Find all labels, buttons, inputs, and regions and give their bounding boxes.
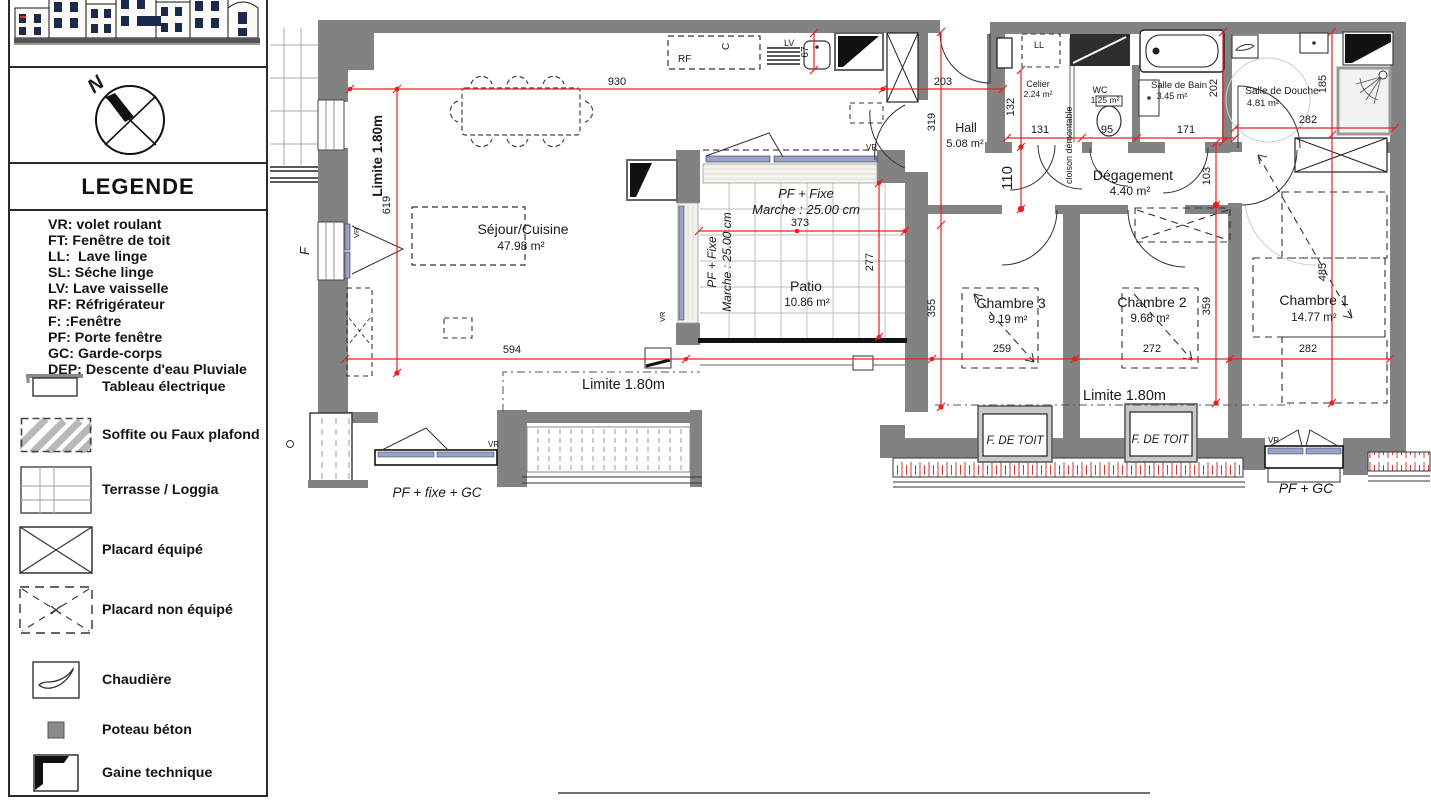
legend-abbreviations: VR: volet roulant FT: Fenêtre de toit LL… [48,217,262,378]
legend-item-unequipped-closet: Placard non équipé [10,583,266,637]
dim-485: 485 [1317,263,1329,281]
legend-item-technical-duct: Gaine technique [10,751,266,795]
legend-item-soffit: Soffite ou Faux plafond [10,414,266,456]
concrete-post-icon [10,721,102,739]
room-wc-name: WC [1093,85,1108,95]
dim-619: 619 [381,196,393,214]
abbrev-sl: SL: Séche linge [48,265,262,281]
legend-item-equipped-closet: Placard équipé [10,523,266,577]
abbrev-vr: VR: volet roulant [48,217,262,233]
abbrev-ll: LL: Lave linge [48,249,262,265]
limite-right: Limite 1.80m [1083,388,1166,404]
dim-259: 259 [993,343,1011,355]
c-label: C [721,43,732,50]
room-sejour-area: 47.98 m² [497,239,544,253]
dim-594: 594 [503,344,521,356]
exterior-terrace-grid [270,28,318,165]
room-sdd-name: Salle de Douche [1245,86,1319,97]
washer-box [1022,34,1060,67]
dim-131: 131 [1031,124,1049,136]
patio-pf-fixe-left: PF + Fixe [705,236,719,288]
dim-202: 202 [1208,79,1220,97]
dim-282-top: 282 [1299,114,1317,126]
room-ch1-area: 14.77 m² [1291,312,1337,324]
electrical-panel [997,38,1012,68]
soffit-icon [10,417,102,453]
dim-359: 359 [1201,297,1213,315]
technical-duct-icon [10,754,102,792]
room-sdb-area: 3.45 m² [1157,91,1188,101]
room-ch3-area: 9.19 m² [989,314,1028,326]
vr-label-5: VR [658,311,667,322]
dim-171: 171 [1177,124,1195,136]
room-sejour-name: Séjour/Cuisine [477,221,568,237]
f-de-toit-1: F. DE TOIT [986,435,1044,447]
limite-left: Limite 1.80m [370,115,385,197]
dining-table [450,76,592,146]
vr-label-3: VR [866,143,877,152]
abbrev-lv: LV: Lave vaisselle [48,281,262,297]
room-celier-name: Celier [1026,79,1050,89]
dim-203: 203 [934,76,952,88]
compass: N [10,68,266,164]
room-wc-area: 1.25 m² [1091,95,1120,105]
dim-132: 132 [1005,98,1017,116]
dim-319: 319 [926,113,938,131]
room-patio-area: 10.86 m² [784,297,830,309]
patio-pf-fixe-top: PF + Fixe [778,186,834,201]
lv-label: LV [784,38,794,48]
electrical-panel-icon [10,373,102,401]
legend-item-electrical-panel: Tableau électrique [10,371,266,403]
dim-110: 110 [999,166,1016,190]
ll-label: LL [1034,40,1044,50]
dim-930: 930 [608,76,626,88]
floorplan-sheet: 930 203 619 67 319 355 132 110 131 95 17… [0,0,1431,800]
cloison-label: cloison démontable [1064,106,1074,184]
unequipped-closet-icon [10,586,102,634]
dim-355: 355 [926,299,938,317]
legend-title: LEGENDE [81,174,194,200]
legend-item-concrete-post: Poteau béton [10,716,266,744]
room-sdb-name: Salle de Bain [1151,80,1207,91]
boiler-icon [10,661,102,699]
dishwasher-hatch [767,48,800,64]
rf-label: RF [678,54,691,65]
patio-marche-top: Marche : 25.00 cm [752,202,860,217]
vr-label-2: VR [1268,436,1279,445]
equipped-closet-icon [10,526,102,574]
shower-icon [1338,68,1390,134]
terrace-icon [10,466,102,514]
dim-272: 272 [1143,343,1161,355]
terrace-railing [270,167,318,182]
room-celier-area: 2.24 m² [1024,89,1053,99]
room-sdd-area: 4.81 m² [1247,98,1279,109]
dim-95: 95 [1101,124,1113,136]
room-degagement-area: 4.40 m² [1110,184,1151,198]
closet-dashed [347,288,372,376]
dim-103: 103 [1201,167,1213,185]
facade-elevation-thumbnail [10,0,266,68]
patio-duct [627,160,677,368]
abbrev-gc: GC: Garde-corps [48,346,262,362]
room-patio-name: Patio [790,278,822,294]
dim-373: 373 [791,217,809,229]
dim-282-bottom: 282 [1299,343,1317,355]
patio-marche-left: Marche : 25.00 cm [720,212,734,311]
dep-downpipe-icon [287,441,294,448]
room-hall-name: Hall [955,121,977,135]
f-de-toit-2: F. DE TOIT [1131,434,1189,446]
dim-67: 67 [800,46,811,58]
legend-item-boiler: Chaudière [10,659,266,701]
dim-185: 185 [1317,75,1329,93]
room-ch1-name: Chambre 1 [1279,292,1348,308]
compass-north-label: N [84,71,109,98]
abbrev-ft: FT: Fenêtre de toit [48,233,262,249]
pf-gc-label: PF + GC [1279,480,1334,496]
abbrev-f: F: :Fenêtre [48,314,262,330]
room-ch3-name: Chambre 3 [976,295,1045,311]
walls [318,20,1406,487]
room-ch2-name: Chambre 2 [1117,294,1186,310]
room-ch2-area: 9.68 m² [1131,313,1170,325]
dim-277: 277 [864,253,876,271]
vr-label-1: VR [488,440,499,449]
room-hall-area: 5.08 m² [946,138,984,150]
abbrev-pf: PF: Porte fenêtre [48,330,262,346]
limite-mid: Limite 1.80m [582,377,665,393]
vr-label-4: VR [352,227,361,238]
pf-fixe-gc-label: PF + fixe + GC [392,485,481,500]
bathroom-fixtures [997,30,1393,172]
room-degagement-name: Dégagement [1093,167,1173,183]
legend-panel: N LEGENDE VR: volet roulant FT: Fenêtre … [8,0,268,797]
abbrev-rf: RF: Réfrigérateur [48,297,262,313]
f-label: F [297,246,312,255]
sejour-south-window [375,428,497,465]
legend-item-terrace: Terrasse / Loggia [10,463,266,517]
